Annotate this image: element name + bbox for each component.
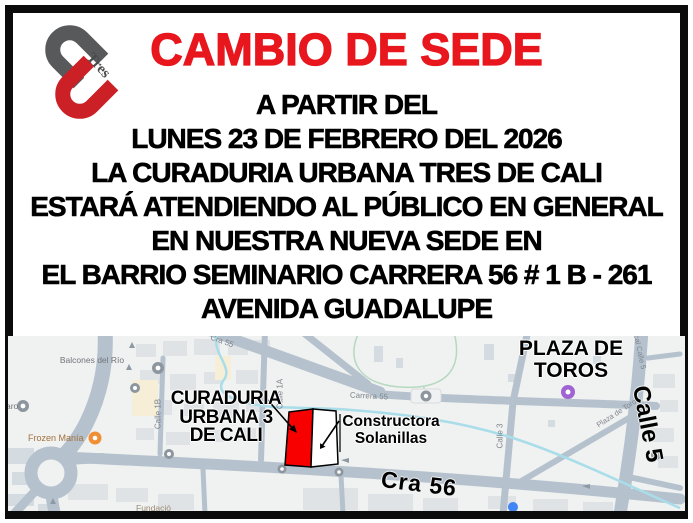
frozen-mania-marker-dot xyxy=(93,436,98,441)
constructora-lot xyxy=(311,409,338,467)
announcement-line-2: LUNES 23 DE FEBRERO DEL 2026 xyxy=(0,122,693,156)
announcement-line-4: ESTARÁ ATENDIENDO AL PÚBLICO EN GENERAL xyxy=(0,190,693,224)
annotation-constructora-line1: Constructora xyxy=(335,414,447,431)
poi-label-aro-partial: aro xyxy=(8,401,18,411)
poi-label-balcones-del-rio: Balcones del Río xyxy=(60,355,124,365)
announcement-line-7: AVENIDA GUADALUPE xyxy=(0,292,693,326)
street-label-calle-3: Calle 3 xyxy=(496,424,505,449)
street-label-carrera-55: Carrera 55 xyxy=(350,391,389,402)
poi-label-frozen-mania: Frozen Manía xyxy=(28,433,84,443)
annotation-constructora-line2: Solanillas xyxy=(335,431,447,448)
annotation-curaduria-line3: DE CALI xyxy=(160,427,292,446)
annotation-plaza-line2: TOROS xyxy=(510,360,632,382)
announcement-text: A PARTIR DEL LUNES 23 DE FEBRERO DEL 202… xyxy=(0,88,693,326)
announcement-line-1: A PARTIR DEL xyxy=(0,88,693,122)
annotation-plaza-line1: PLAZA DE xyxy=(510,338,632,360)
annotation-curaduria-line1: CURADURIA xyxy=(160,390,292,409)
poi-label-fundacio-partial: Fundació xyxy=(136,503,171,511)
announcement-line-6: EL BARRIO SEMINARIO CARRERA 56 # 1 B - 2… xyxy=(0,258,693,292)
announcement-line-5: EN NUESTRA NUEVA SEDE EN xyxy=(0,224,693,258)
poster-root: { "poster": { "title": "CAMBIO DE SEDE",… xyxy=(0,0,693,523)
announcement-line-3: LA CURADURIA URBANA TRES DE CALI xyxy=(0,156,693,190)
plaza-de-toros-marker-dot xyxy=(566,390,571,395)
annotation-plaza-de-toros: PLAZA DE TOROS xyxy=(510,338,632,382)
annotation-curaduria-urbana-3: CURADURIA URBANA 3 DE CALI xyxy=(160,390,292,446)
page-title: CAMBIO DE SEDE xyxy=(0,24,693,76)
annotation-constructora-solanillas: Constructora Solanillas xyxy=(335,414,447,447)
location-map: Carrera 55 Cra 55 Calle 3 Calle 1A Calle… xyxy=(8,336,685,511)
